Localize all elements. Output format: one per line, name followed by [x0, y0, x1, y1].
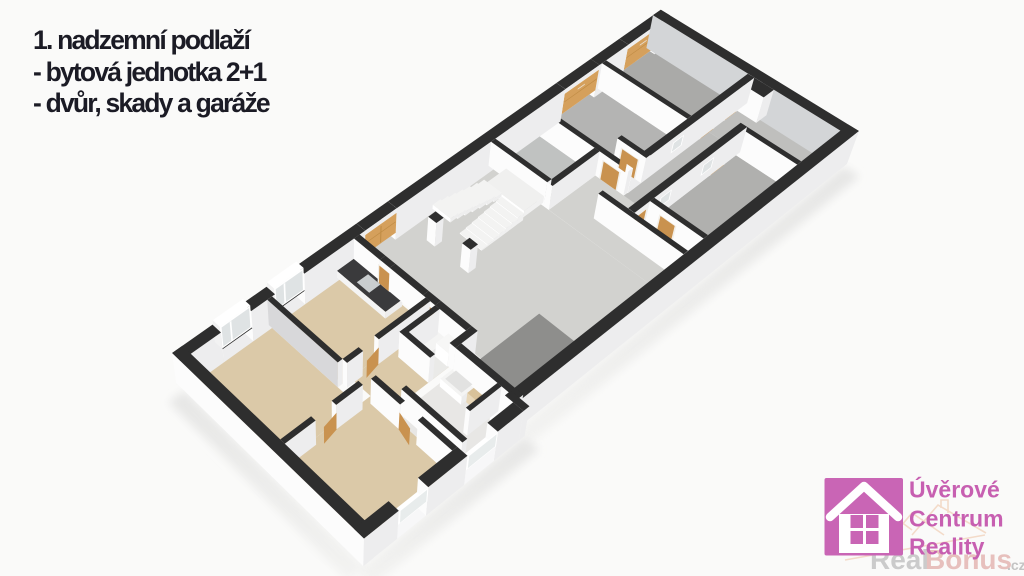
svg-text:Úvěrové: Úvěrové — [909, 476, 1000, 503]
svg-text:Reality: Reality — [909, 534, 985, 560]
svg-text:.cz: .cz — [1007, 557, 1024, 573]
svg-text:Centrum: Centrum — [909, 506, 1004, 532]
